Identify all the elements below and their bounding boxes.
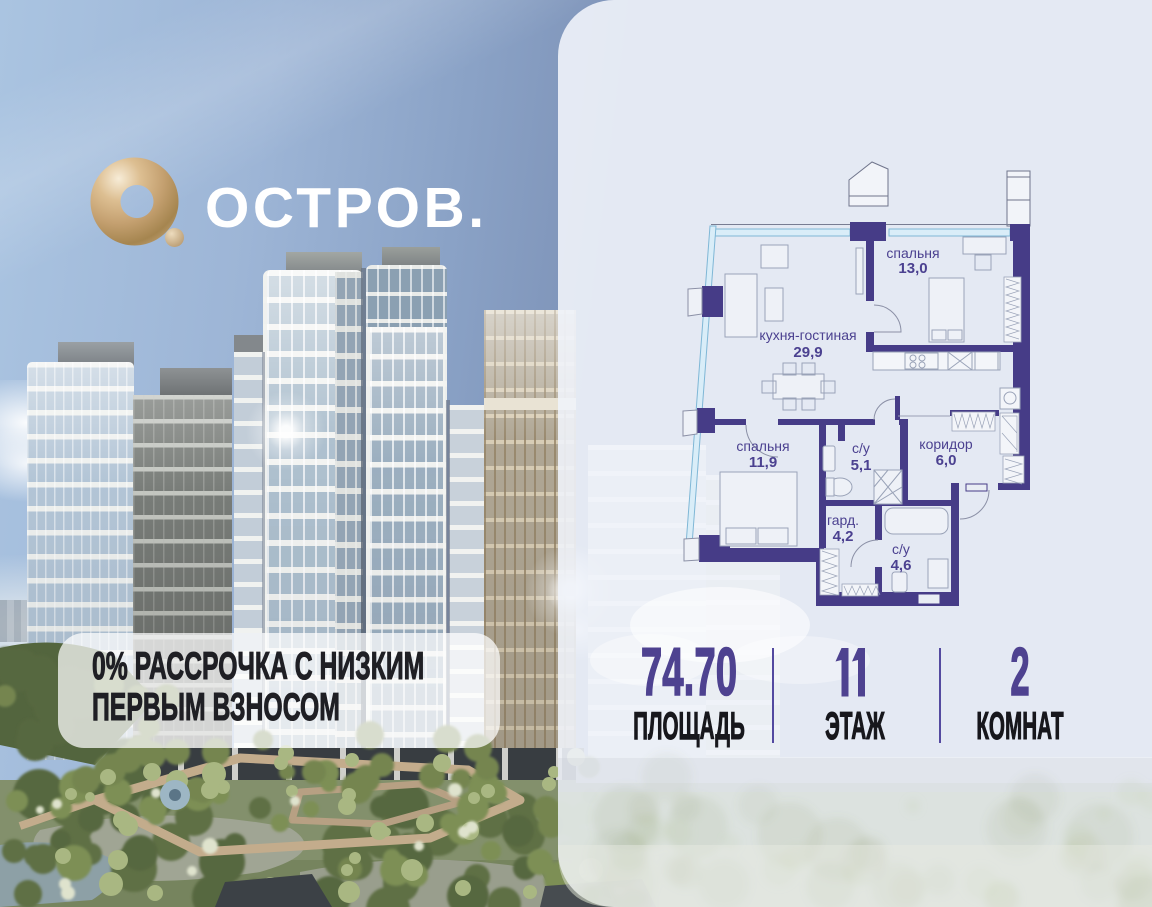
svg-text:11,9: 11,9 [749, 454, 777, 471]
svg-text:спальня: спальня [886, 245, 939, 261]
svg-text:4,2: 4,2 [833, 528, 854, 545]
svg-text:4,6: 4,6 [891, 557, 912, 574]
svg-text:6,0: 6,0 [936, 452, 957, 469]
svg-text:с/у: с/у [892, 541, 910, 557]
svg-text:5,1: 5,1 [851, 457, 872, 474]
svg-text:спальня: спальня [736, 438, 789, 454]
svg-text:13,0: 13,0 [898, 260, 927, 277]
svg-text:коридор: коридор [919, 436, 973, 452]
svg-text:кухня-гостиная: кухня-гостиная [759, 327, 856, 343]
svg-text:с/у: с/у [852, 440, 870, 456]
svg-text:гард.: гард. [827, 512, 859, 528]
svg-text:29,9: 29,9 [793, 344, 822, 361]
